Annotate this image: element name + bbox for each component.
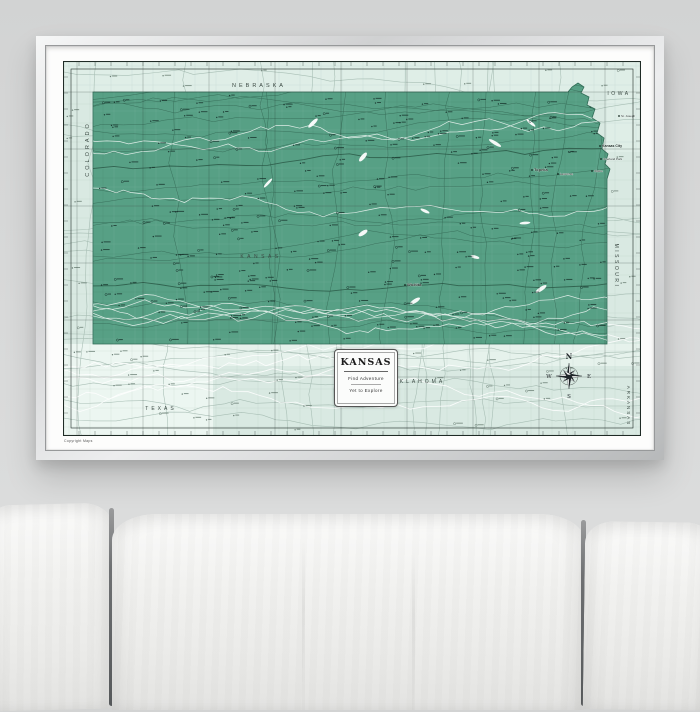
cushion-crease <box>302 540 305 710</box>
city-label-kansas-city: Kansas City <box>602 144 622 148</box>
state-label-iowa: IOWA <box>607 91 630 97</box>
compass-north: N <box>566 352 573 361</box>
tagline-divider <box>351 384 381 385</box>
cushion-seam <box>581 520 586 706</box>
city-label-st-joseph: St. Joseph <box>621 114 636 118</box>
state-label-arkansas: ARKANSAS <box>626 386 631 427</box>
couch-cushion-right <box>583 521 700 711</box>
cushion-crease <box>412 550 415 710</box>
state-label-missouri: MISSOURI <box>613 244 619 289</box>
state-label-colorado: COLORADO <box>85 121 91 176</box>
city-dot <box>600 158 602 160</box>
state-label-texas: TEXAS <box>145 406 176 412</box>
couch-cushion-middle <box>112 514 584 710</box>
city-label-lawrence: Lawrence <box>560 172 573 176</box>
city-label-wichita: Wichita <box>407 282 422 287</box>
copyright-note: Copyright Maps <box>64 439 93 443</box>
couch <box>0 470 700 700</box>
city-label-topeka: Topeka <box>534 167 548 172</box>
map-poster: NEBRASKAIOWACOLORADOMISSOURIARKANSASOKLA… <box>46 46 654 450</box>
compass-south: S <box>567 394 571 400</box>
city-dot <box>618 115 620 117</box>
map-title: KANSAS <box>335 357 397 368</box>
state-label-nebraska: NEBRASKA <box>232 83 286 89</box>
couch-cushion-left <box>0 502 116 711</box>
cushion-seam <box>109 508 114 706</box>
city-dot <box>599 145 601 147</box>
kansas-map: NEBRASKAIOWACOLORADOMISSOURIARKANSASOKLA… <box>63 61 641 436</box>
city-label-olathe: Olathe <box>594 169 603 173</box>
compass-west: W <box>546 374 552 380</box>
picture-frame: NEBRASKAIOWACOLORADOMISSOURIARKANSASOKLA… <box>36 36 664 460</box>
city-dot <box>404 284 406 286</box>
compass-east: E <box>587 374 591 380</box>
city-dot <box>591 170 593 172</box>
map-title-box: KANSAS Find Adventure Yet to Explore <box>334 349 398 407</box>
map-tagline-2: Yet to Explore <box>335 388 397 393</box>
state-label-kansas: KANSAS <box>240 254 281 260</box>
city-dot <box>531 169 533 171</box>
city-dot <box>557 173 559 175</box>
state-label-oklahoma: OKLAHOMA <box>393 379 445 385</box>
title-divider <box>344 371 388 372</box>
map-tagline-1: Find Adventure <box>335 376 397 381</box>
city-label-overland-park: Overland Park <box>603 157 623 161</box>
